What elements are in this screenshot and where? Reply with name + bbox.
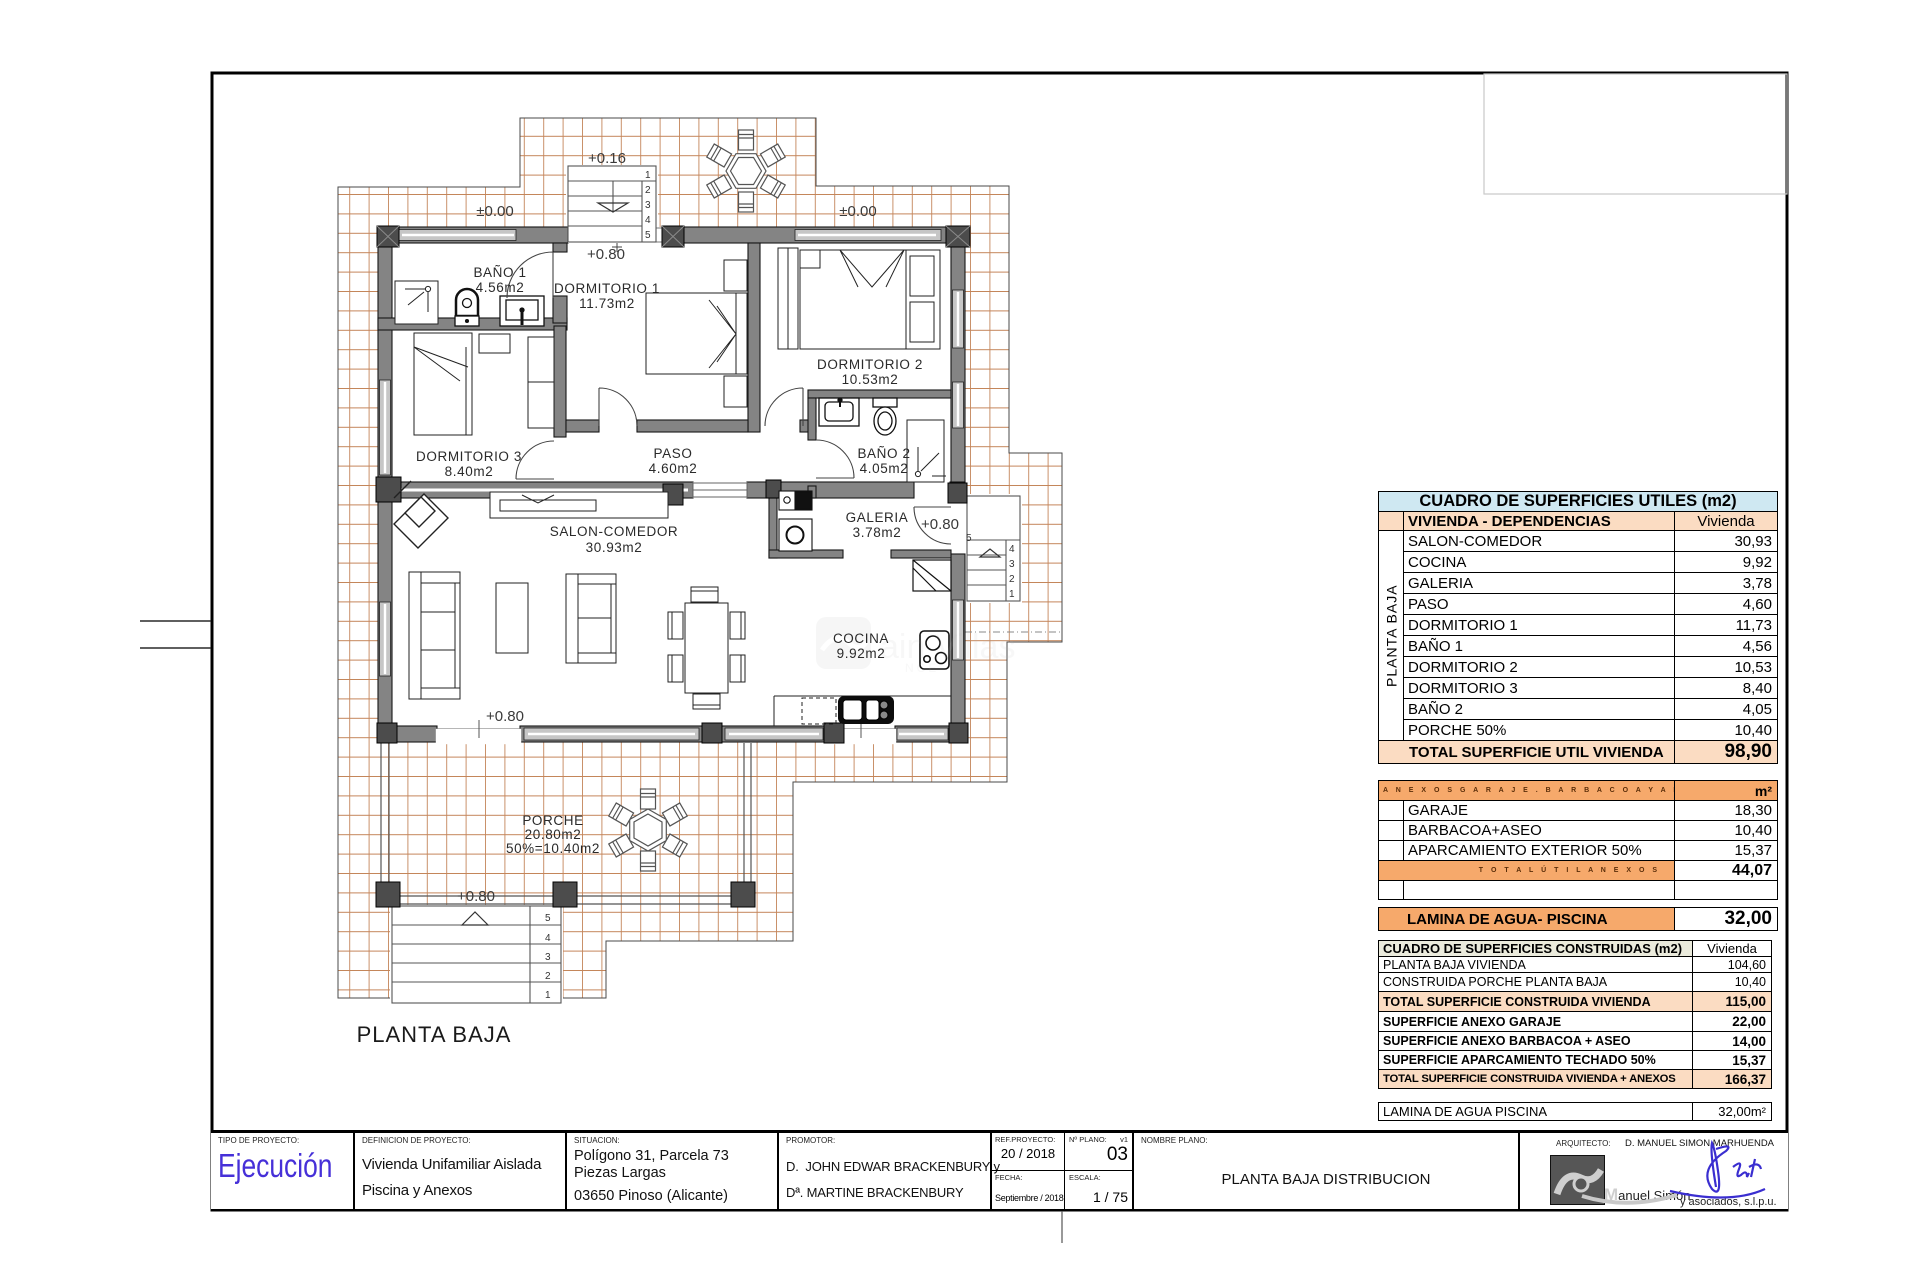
- svg-text:2: 2: [645, 185, 651, 196]
- svg-text:COCINA: COCINA: [833, 631, 889, 646]
- svg-text:3: 3: [1009, 559, 1015, 570]
- svg-text:ain Villas: ain Villas: [880, 628, 1015, 666]
- svg-text:4.05m2: 4.05m2: [860, 461, 909, 476]
- svg-text:2: 2: [545, 971, 551, 982]
- svg-text:11.73m2: 11.73m2: [579, 296, 635, 311]
- svg-text:1: 1: [545, 990, 551, 1001]
- svg-text:PASO: PASO: [654, 446, 693, 461]
- svg-text:SALON-COMEDOR: SALON-COMEDOR: [550, 524, 679, 539]
- svg-text:5: 5: [645, 230, 651, 241]
- svg-text:3: 3: [645, 200, 651, 211]
- svg-text:5: 5: [966, 533, 972, 544]
- svg-text:9.92m2: 9.92m2: [837, 646, 886, 661]
- svg-text:+0.80: +0.80: [587, 246, 625, 263]
- svg-text:+0.80: +0.80: [486, 708, 524, 725]
- svg-text:1: 1: [645, 170, 651, 181]
- svg-text:BAÑO 2: BAÑO 2: [857, 446, 910, 461]
- svg-text:5: 5: [545, 913, 551, 924]
- svg-text:2: 2: [1009, 574, 1015, 585]
- svg-text:DORMITORIO 2: DORMITORIO 2: [817, 357, 923, 372]
- svg-text:DORMITORIO 3: DORMITORIO 3: [416, 449, 522, 464]
- svg-text:GALERIA: GALERIA: [846, 510, 909, 525]
- svg-text:±0.00: ±0.00: [839, 203, 876, 220]
- svg-text:4.60m2: 4.60m2: [649, 461, 698, 476]
- svg-text:4: 4: [545, 933, 551, 944]
- svg-text:4: 4: [645, 215, 651, 226]
- svg-text:DORMITORIO 1: DORMITORIO 1: [554, 281, 660, 296]
- svg-text:1: 1: [1009, 589, 1015, 600]
- svg-text:10.53m2: 10.53m2: [842, 372, 899, 387]
- svg-text:4: 4: [1009, 544, 1015, 555]
- svg-text:NCE: NCE: [905, 661, 939, 675]
- svg-text:±0.00: ±0.00: [476, 203, 513, 220]
- svg-text:20.80m2: 20.80m2: [525, 827, 582, 842]
- svg-text:+0.80: +0.80: [457, 888, 495, 905]
- svg-text:PORCHE: PORCHE: [522, 813, 583, 828]
- svg-text:BAÑO 1: BAÑO 1: [473, 265, 526, 280]
- svg-text:4.56m2: 4.56m2: [476, 280, 525, 295]
- svg-text:+0.16: +0.16: [588, 150, 626, 167]
- svg-text:PLANTA BAJA: PLANTA BAJA: [357, 1022, 512, 1047]
- svg-text:50%=10.40m2: 50%=10.40m2: [506, 841, 600, 856]
- svg-text:3: 3: [545, 952, 551, 963]
- svg-text:3.78m2: 3.78m2: [853, 525, 902, 540]
- svg-text:30.93m2: 30.93m2: [586, 540, 643, 555]
- svg-text:8.40m2: 8.40m2: [445, 464, 494, 479]
- svg-text:+0.80: +0.80: [921, 516, 959, 533]
